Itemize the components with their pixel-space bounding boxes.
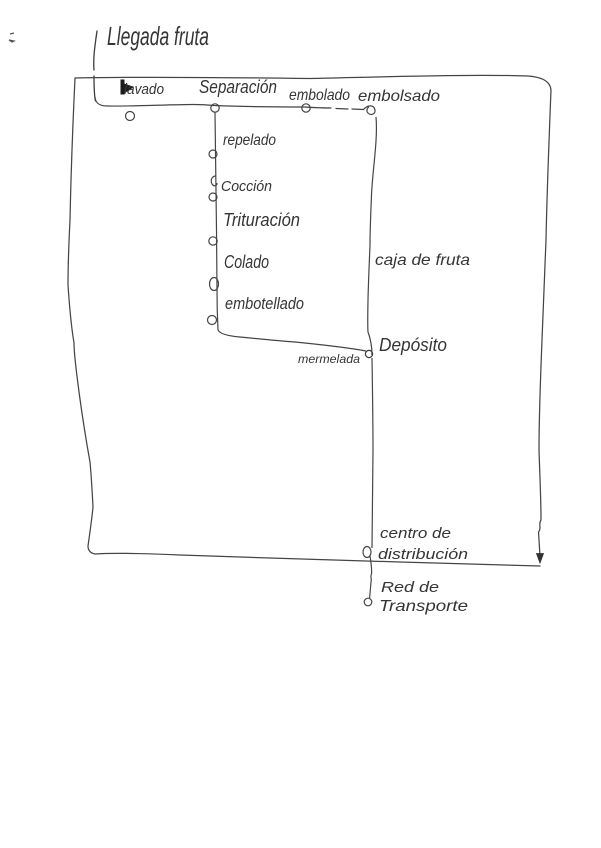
svg-text:distribución: distribución — [378, 546, 468, 563]
svg-text:Depósito: Depósito — [379, 335, 447, 355]
svg-text:Separación: Separación — [199, 77, 277, 97]
svg-text:caja de fruta: caja de fruta — [375, 252, 470, 269]
svg-text:embolado: embolado — [289, 87, 350, 104]
svg-text:Colado: Colado — [224, 252, 269, 272]
svg-text:embolsado: embolsado — [358, 88, 440, 105]
svg-text:embotellado: embotellado — [225, 294, 304, 313]
svg-text:Trituración: Trituración — [223, 210, 300, 230]
svg-text:Transporte: Transporte — [379, 598, 468, 615]
svg-text:mermelada: mermelada — [298, 352, 360, 366]
svg-text:Cocción: Cocción — [221, 178, 272, 195]
svg-text:centro de: centro de — [380, 525, 451, 542]
svg-text:lavado: lavado — [124, 81, 164, 98]
svg-text:Red de: Red de — [381, 579, 439, 596]
svg-text:repelado: repelado — [223, 132, 276, 149]
svg-text:Llegada fruta: Llegada fruta — [107, 21, 209, 51]
